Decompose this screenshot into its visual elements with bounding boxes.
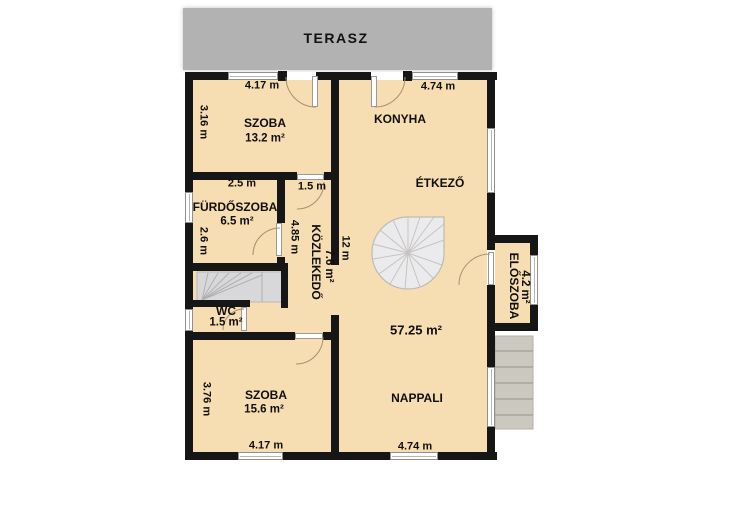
room-label-bedroom-top: SZOBA: [244, 117, 286, 129]
wall-top-jamb-2: [403, 71, 412, 81]
area-label-hallway: 7.6 m²: [322, 249, 334, 282]
room-label-bathroom: FÜRDŐSZOBA: [193, 201, 278, 213]
wall-left-3: [185, 331, 193, 460]
room-label-bedroom-bottom: SZOBA: [245, 389, 287, 401]
dim-kitchen-width: 4.74 m: [421, 82, 455, 93]
wall-entry-bottom: [487, 323, 538, 331]
dim-main-room-depth: 12 m: [340, 235, 351, 260]
wall-entry-right-1: [530, 235, 538, 255]
dim-bedroom-top-depth: 3.16 m: [198, 105, 209, 139]
room-label-dining: ÉTKEZŐ: [416, 177, 465, 189]
window-top-kitchen: [412, 72, 458, 80]
terrace-label: TERASZ: [304, 30, 369, 46]
dim-bedroom-bottom-width: 4.17 m: [249, 441, 283, 452]
window-bottom-living: [390, 452, 438, 460]
door-leaf-terrace-bedroom: [312, 76, 318, 107]
wall-bedroomtop-bottom-2: [324, 172, 339, 180]
dim-bathroom-depth: 2.6 m: [198, 227, 209, 255]
door-leaf-bedroombottom: [295, 333, 323, 339]
door-leaf-bathroom: [276, 223, 282, 256]
wall-right-1: [487, 72, 495, 128]
door-leaf-entry: [488, 252, 494, 285]
window-right-steps: [487, 367, 495, 427]
dim-hall-length: 4.85 m: [289, 220, 300, 254]
area-label-bedroom-top: 13.2 m²: [245, 133, 285, 145]
wall-bathroom-right-1: [277, 180, 285, 223]
dim-bedroom-top-width: 4.17 m: [245, 81, 279, 92]
area-label-bathroom: 6.5 m²: [220, 216, 253, 228]
area-label-wc: 1.5 m²: [209, 317, 242, 329]
wall-hall-bottom-2: [323, 332, 339, 340]
dim-bedroom-bottom-depth: 3.76 m: [201, 382, 212, 416]
window-left-wc: [185, 309, 193, 331]
door-leaf-terrace-kitchen: [371, 76, 377, 107]
room-label-living: NAPPALI: [391, 392, 443, 404]
area-label-entry: 4.2 m²: [518, 270, 530, 303]
floor-plan-canvas: TERASZ: [0, 0, 730, 516]
window-right-dining: [487, 128, 495, 193]
door-leaf-bedroomtop-hall: [297, 174, 324, 180]
room-label-kitchen: KONYHA: [374, 113, 426, 125]
external-steps-icon: [495, 336, 533, 429]
wall-top-jamb-1: [278, 71, 287, 81]
wall-top-2: [316, 72, 371, 80]
wall-divider-upper: [331, 72, 339, 265]
wall-stairs-stub: [281, 271, 288, 308]
area-label-living: 57.25 m²: [390, 324, 442, 337]
wall-right-4: [487, 427, 495, 460]
room-label-wc: WC: [216, 305, 236, 317]
window-bottom-bedroom: [238, 452, 283, 460]
area-label-bedroom-bottom: 15.6 m²: [244, 404, 284, 416]
terrace: TERASZ: [183, 8, 492, 70]
dim-living-width: 4.74 m: [398, 442, 432, 453]
dim-bathroom-width: 2.5 m: [228, 179, 256, 190]
window-entry: [530, 255, 538, 305]
wall-bathroom-bottom: [185, 263, 288, 271]
dim-hall-door-width: 1.5 m: [298, 182, 326, 193]
wall-hall-bottom-1: [185, 332, 295, 340]
room-label-hallway: KÖZLEKEDŐ: [310, 224, 322, 299]
